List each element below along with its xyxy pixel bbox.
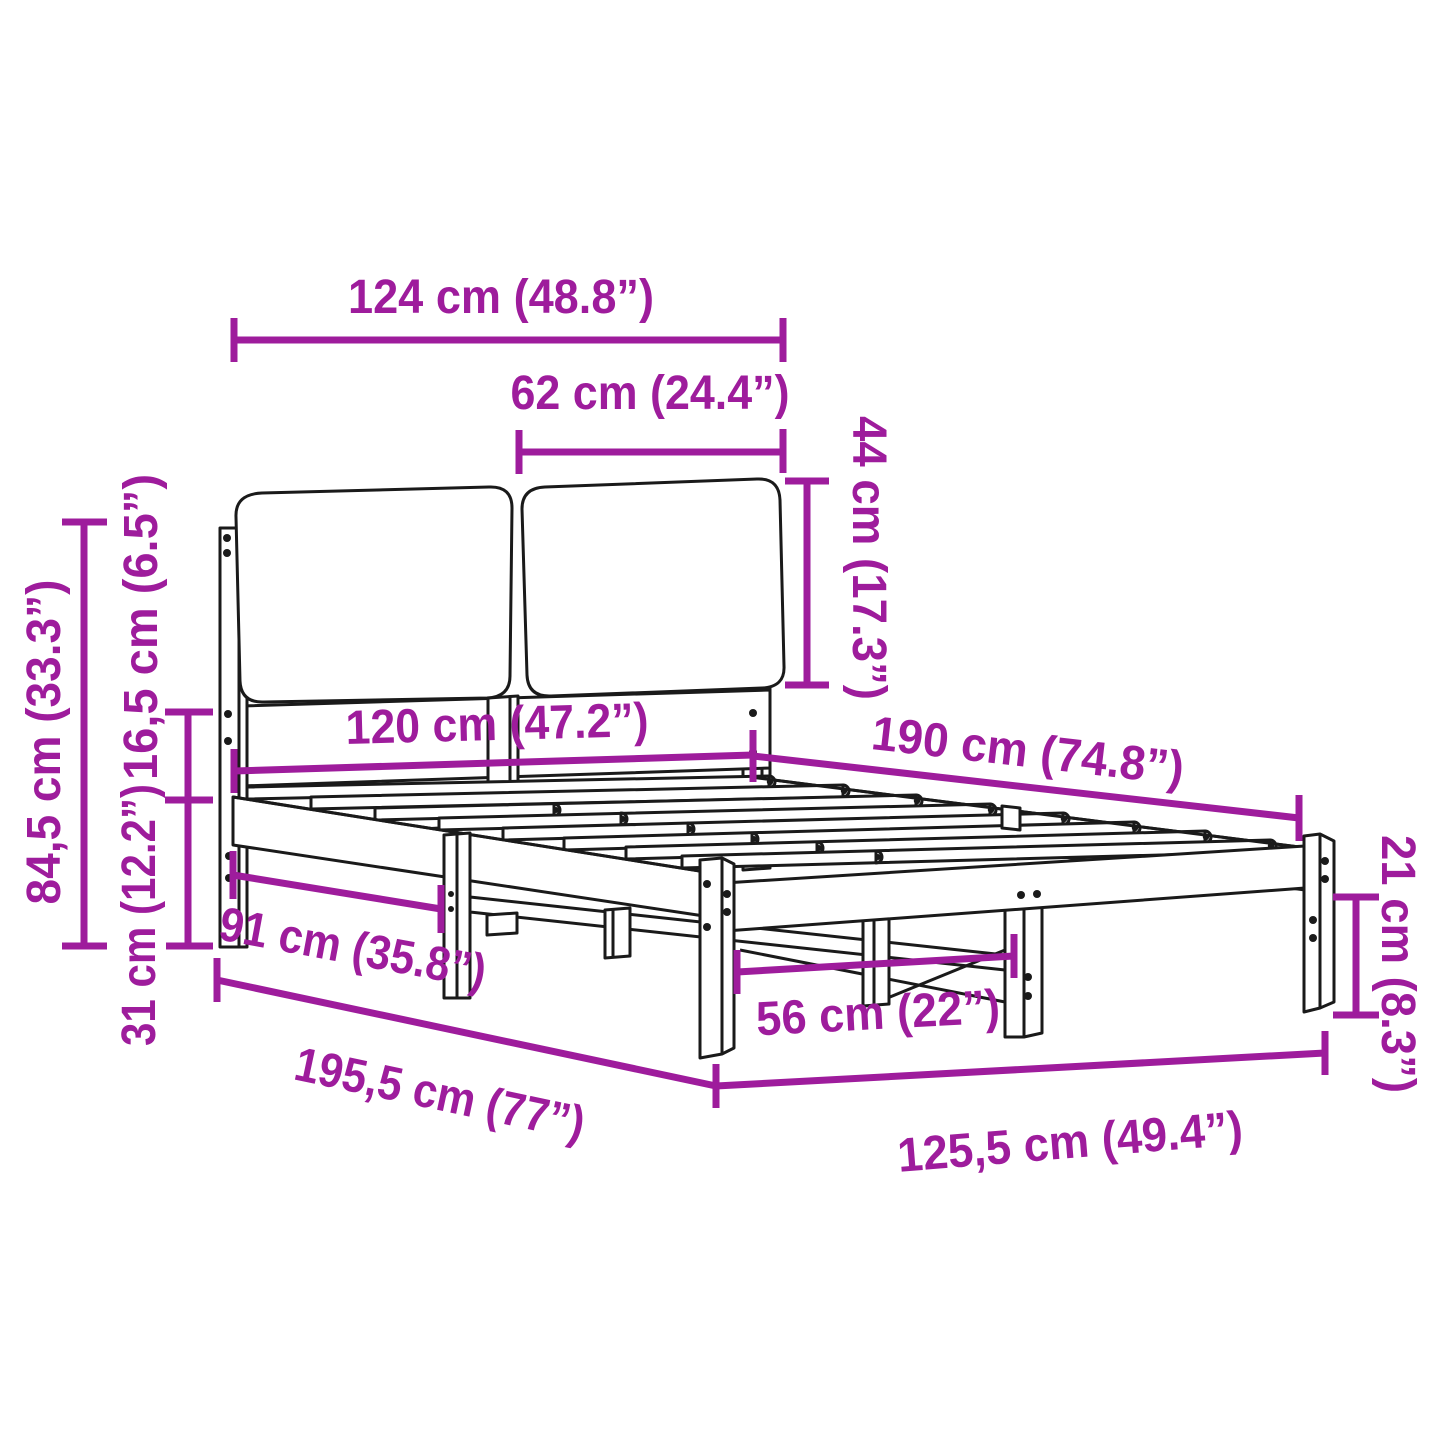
svg-text:84,5 cm (33.3”): 84,5 cm (33.3”) <box>18 580 71 905</box>
svg-text:62 cm (24.4”): 62 cm (24.4”) <box>511 367 790 420</box>
svg-text:44 cm (17.3”): 44 cm (17.3”) <box>842 416 895 700</box>
svg-text:21 cm (8.3”): 21 cm (8.3”) <box>1371 835 1424 1093</box>
svg-text:124 cm (48.8”): 124 cm (48.8”) <box>348 271 654 324</box>
svg-text:31 cm (12.2”): 31 cm (12.2”) <box>113 784 166 1046</box>
svg-text:120 cm (47.2”): 120 cm (47.2”) <box>345 694 649 755</box>
svg-text:16,5 cm (6.5”): 16,5 cm (6.5”) <box>115 474 168 780</box>
